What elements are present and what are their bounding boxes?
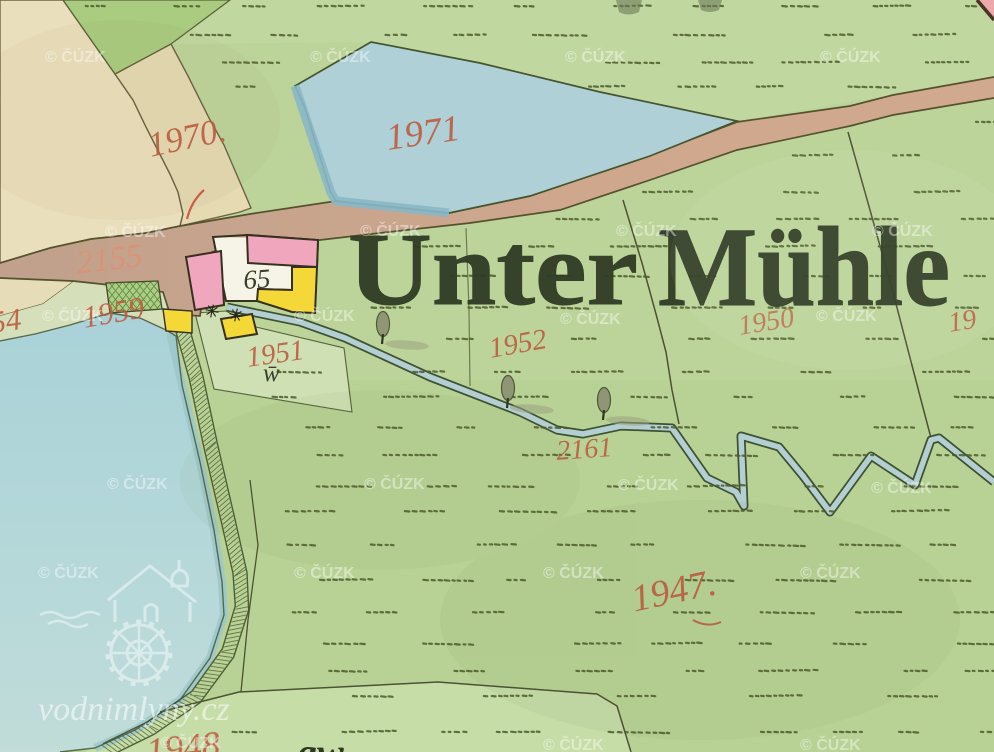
svg-text:© ČÚZK: © ČÚZK [565, 47, 626, 66]
svg-text:65: 65 [242, 263, 271, 295]
svg-text:© ČÚZK: © ČÚZK [560, 309, 621, 328]
svg-text:© ČÚZK: © ČÚZK [618, 475, 679, 494]
svg-text:© ČÚZK: © ČÚZK [294, 563, 355, 582]
svg-text:vodnimlyny.cz: vodnimlyny.cz [38, 691, 230, 728]
svg-text:© ČÚZK: © ČÚZK [105, 222, 166, 241]
svg-text:© ČÚZK: © ČÚZK [872, 221, 933, 240]
svg-text:© ČÚZK: © ČÚZK [616, 221, 677, 240]
svg-text:© ČÚZK: © ČÚZK [543, 735, 604, 752]
svg-text:© ČÚZK: © ČÚZK [160, 733, 221, 752]
svg-text:gw: gw [296, 730, 344, 752]
svg-text:© ČÚZK: © ČÚZK [107, 474, 168, 493]
svg-text:© ČÚZK: © ČÚZK [45, 47, 106, 66]
svg-text:© ČÚZK: © ČÚZK [360, 221, 421, 240]
svg-text:© ČÚZK: © ČÚZK [38, 563, 99, 582]
svg-text:© ČÚZK: © ČÚZK [871, 478, 932, 497]
svg-text:© ČÚZK: © ČÚZK [820, 47, 881, 66]
svg-text:© ČÚZK: © ČÚZK [816, 306, 877, 325]
svg-text:© ČÚZK: © ČÚZK [364, 474, 425, 493]
svg-text:© ČÚZK: © ČÚZK [310, 47, 371, 66]
svg-text:w̄: w̄ [263, 360, 280, 387]
svg-text:© ČÚZK: © ČÚZK [42, 306, 103, 325]
svg-text:© ČÚZK: © ČÚZK [800, 563, 861, 582]
svg-text:© ČÚZK: © ČÚZK [543, 563, 604, 582]
svg-text:© ČÚZK: © ČÚZK [294, 306, 355, 325]
svg-text:© ČÚZK: © ČÚZK [800, 735, 861, 752]
